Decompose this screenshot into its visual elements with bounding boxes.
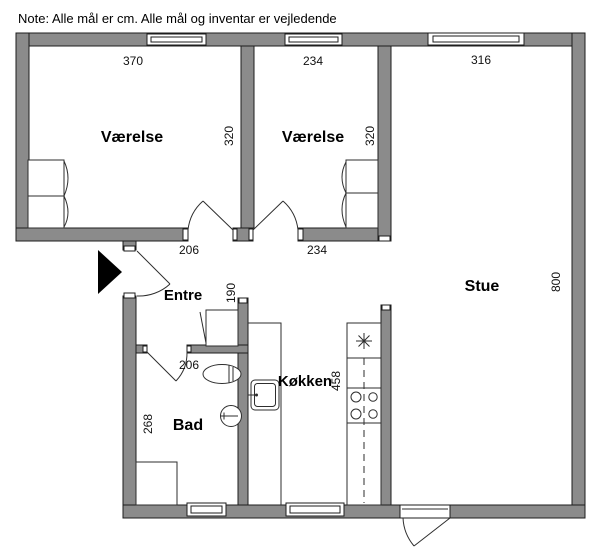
door-bedroom1 bbox=[188, 201, 233, 230]
wall-cap bbox=[298, 229, 303, 240]
dim-vaerelse1-depth: 320 bbox=[222, 126, 236, 146]
dim-entre-width: 206 bbox=[179, 243, 199, 257]
wall-bedroom1-bedroom2 bbox=[241, 46, 254, 228]
wall-cap bbox=[187, 346, 191, 352]
wall-cap bbox=[249, 229, 253, 240]
dim-stue-depth: 800 bbox=[549, 272, 563, 292]
dim-entre-closet: 190 bbox=[224, 283, 238, 303]
note-text: Note: Alle mål er cm. Alle mål og invent… bbox=[18, 11, 337, 26]
wall-bedroom2-stue bbox=[378, 46, 391, 241]
window-bad bbox=[187, 503, 226, 516]
wall-cap bbox=[382, 305, 390, 310]
wall-cap bbox=[239, 298, 247, 303]
room-label-stue: Stue bbox=[465, 278, 500, 295]
wardrobe-bedroom2 bbox=[342, 160, 378, 228]
floor-plan-drawing: Note: Alle mål er cm. Alle mål og invent… bbox=[0, 0, 600, 553]
dim-vaerelse1-width: 370 bbox=[123, 54, 143, 68]
room-label-vaerelse1: Værelse bbox=[101, 129, 163, 146]
washbasin-icon bbox=[221, 406, 242, 427]
dim-vaerelse2-depth: 320 bbox=[363, 126, 377, 146]
shower-tray bbox=[136, 462, 177, 505]
kitchen-sink-icon bbox=[248, 380, 279, 410]
room-label-vaerelse2: Værelse bbox=[282, 129, 344, 146]
entrance-arrow-icon bbox=[98, 250, 122, 294]
door-bedroom2 bbox=[253, 201, 298, 230]
floor-plan: Note: Alle mål er cm. Alle mål og invent… bbox=[0, 0, 600, 553]
wall-cap bbox=[183, 229, 188, 240]
wall-bedrooms-bottom-a bbox=[16, 228, 188, 241]
labels: Note: Alle mål er cm. Alle mål og invent… bbox=[18, 11, 563, 434]
kitchen-counter-right bbox=[347, 323, 381, 505]
window-bedroom1 bbox=[147, 34, 206, 45]
window-bedroom2 bbox=[285, 34, 342, 45]
wall-cap bbox=[379, 236, 390, 241]
wall-left-lower-b bbox=[123, 296, 136, 505]
room-label-bad: Bad bbox=[173, 417, 203, 434]
wall-cap bbox=[124, 293, 135, 298]
entre-closet bbox=[200, 310, 238, 346]
kitchen-counter-left bbox=[248, 323, 281, 505]
wardrobe-bedroom1 bbox=[28, 160, 68, 228]
window-koekken bbox=[286, 503, 344, 516]
window-stue bbox=[428, 33, 524, 45]
wall-cap bbox=[233, 229, 237, 240]
wall-koekken-stue bbox=[381, 305, 391, 505]
balcony-door bbox=[400, 505, 450, 546]
dim-bad-depth: 268 bbox=[141, 414, 155, 434]
wall-cap bbox=[124, 246, 135, 251]
dim-vaerelse2-width: 234 bbox=[303, 54, 323, 68]
fixtures bbox=[28, 160, 381, 505]
wall-right bbox=[572, 33, 585, 518]
toilet-icon bbox=[203, 365, 241, 384]
dim-bad-width: 206 bbox=[179, 358, 199, 372]
dim-stue-width: 316 bbox=[471, 53, 491, 67]
wall-bad-koekken bbox=[238, 298, 248, 505]
wall-left-upper bbox=[16, 33, 29, 241]
room-label-koekken: Køkken bbox=[278, 373, 332, 390]
room-label-entre: Entre bbox=[164, 287, 202, 304]
dim-koekken-width: 234 bbox=[307, 243, 327, 257]
dim-koekken-depth: 458 bbox=[329, 371, 343, 391]
wall-bedrooms-bottom-c bbox=[298, 228, 391, 241]
windows bbox=[147, 33, 524, 516]
wall-cap bbox=[143, 346, 147, 352]
